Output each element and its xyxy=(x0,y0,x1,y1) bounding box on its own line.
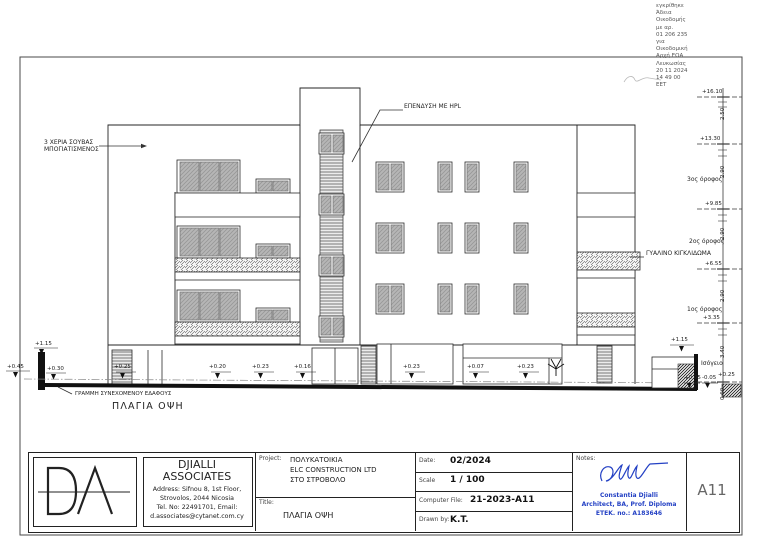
spot-bottom: +0.25 xyxy=(114,364,131,370)
annotation-hpl: ΕΠΕΝΔΥΣΗ ΜΕ HPL xyxy=(404,104,461,111)
annotation-glass-railing: ΓΥΑΛΙΝΟ ΚΙΓΚΛΙΔΩΜΑ xyxy=(646,251,711,258)
spot-right-a: +0.05 xyxy=(684,375,701,381)
stamp-line: Λευκωσίας xyxy=(656,61,688,68)
spot-right-c: +0.25 xyxy=(718,372,735,378)
stamp-line: Οικοδομής xyxy=(656,17,688,24)
notes-label: Notes: xyxy=(576,456,595,463)
firm-address-2: Strovolos, 2044 Nicosia xyxy=(143,495,251,502)
floor-label-1: 1ος όροφος xyxy=(687,307,722,314)
date-label: Date: xyxy=(419,458,435,465)
drawing-title-label: ΠΛΑΓΙΑ ΟΨΗ xyxy=(112,402,184,413)
logo-box xyxy=(33,457,137,527)
annotation-plaster-line2: ΜΠΟΓΙΑΤΙΣΜΕΝΟΣ xyxy=(44,147,99,154)
approval-stamp: εγκρίθηκε Άδεια Οικοδομής με αρ. 01 206 … xyxy=(656,3,688,89)
title-label: Title: xyxy=(259,500,274,507)
spot-bottom: +0.23 xyxy=(403,364,420,370)
floor-label-2: 2ος όροφος xyxy=(689,239,724,246)
drawing-sheet: εγκρίθηκε Άδεια Οικοδομής με αρ. 01 206 … xyxy=(0,0,768,543)
floor-label-3: 3ος όροφος xyxy=(687,177,722,184)
scale-label: Scale xyxy=(419,478,435,485)
spot-bottom: +0.23 xyxy=(517,364,534,370)
titleblock-divider xyxy=(255,497,415,498)
right-balconies xyxy=(577,193,640,335)
dim-storey: 3.40 xyxy=(720,346,726,358)
architect-credentials: Architect, BA, Prof. Diploma xyxy=(572,502,686,509)
stamp-line: EET xyxy=(656,82,688,89)
floor-label-ground: Ισόγειο xyxy=(701,361,723,368)
titleblock-divider xyxy=(572,452,573,531)
spot-bottom: +0.23 xyxy=(252,364,269,370)
architect-signature-icon xyxy=(596,458,676,490)
level-f2: +6.55 xyxy=(705,261,722,267)
drawn-by-label: Drawn by: xyxy=(419,517,449,524)
stamp-line: 14 49 00 xyxy=(656,75,688,82)
annotation-plaster: 3 ΧΕΡΙΑ ΣΟΥΒΑΣ ΜΠΟΓΙΑΤΙΣΜΕΝΟΣ xyxy=(44,140,99,154)
dim-storey: 0.60 xyxy=(720,388,726,400)
architect-etek-number: ETEK. no.: A183646 xyxy=(572,511,686,518)
firm-address-4: d.associates@cytanet.com.cy xyxy=(143,513,251,520)
level-roof: +16.10 xyxy=(702,89,722,95)
title-value: ΠΛΑΓΙΑ ΟΨΗ xyxy=(283,511,333,520)
level-f3: +9.85 xyxy=(705,201,722,207)
spot-bottom: +0.20 xyxy=(209,364,226,370)
titleblock-divider xyxy=(255,452,256,531)
dim-storey: 2.90 xyxy=(720,290,726,302)
sheet-number: A11 xyxy=(686,482,738,499)
annotation-ground-line: ΓΡΑΜΜΗ ΣΥΝΕΧΟΜΕΝΟΥ ΕΔΑΦΟΥΣ xyxy=(75,391,171,397)
stamp-line: 01 206 235 xyxy=(656,32,688,39)
spot-left-a: +0.45 xyxy=(7,364,24,370)
project-line-3: ΣΤΟ ΣΤΡΟΒΟΛΟ xyxy=(290,476,345,484)
left-wing xyxy=(175,160,300,344)
stamp-line: 20 11 2024 xyxy=(656,68,688,75)
spot-right-wall: +1.15 xyxy=(671,337,688,343)
file-value: 21-2023-A11 xyxy=(470,495,535,505)
firm-name-2: ASSOCIATES xyxy=(143,471,251,484)
architect-name: Constantia Djialli xyxy=(572,493,686,500)
spot-left-b: +0.30 xyxy=(47,366,64,372)
stamp-line: με αρ. xyxy=(656,25,688,32)
titleblock-divider xyxy=(415,491,572,492)
spot-bottom: +0.07 xyxy=(467,364,484,370)
dim-storey: 2.50 xyxy=(720,108,726,120)
level-f1: +3.35 xyxy=(703,315,720,321)
spot-left-wall: +1.15 xyxy=(35,341,52,347)
firm-logo-icon xyxy=(34,458,134,524)
firm-address-1: Address: Sifnou 8, 1st Floor, xyxy=(143,486,251,493)
titleblock-divider xyxy=(415,511,572,512)
spot-bottom: +0.16 xyxy=(294,364,311,370)
file-label: Computer File: xyxy=(419,498,463,505)
spot-right-b: -0.05 xyxy=(702,375,716,381)
project-line-1: ΠΟΛΥΚΑΤΟΙΚΙΑ xyxy=(290,456,343,464)
date-value: 02/2024 xyxy=(450,456,491,466)
stair-tower xyxy=(319,130,344,342)
drawn-by-value: K.T. xyxy=(450,515,469,525)
dim-storey: 2.90 xyxy=(720,228,726,240)
titleblock-divider xyxy=(415,472,572,473)
level-f3top: +13.30 xyxy=(700,136,720,142)
scale-value: 1 / 100 xyxy=(450,475,485,485)
firm-address-3: Tel. No: 22491701, Email: xyxy=(143,504,251,511)
project-label: Project: xyxy=(259,456,282,463)
stamp-line: Αρχή ΕΟΑ xyxy=(656,53,688,60)
project-line-2: ELC CONSTRUCTION LTD xyxy=(290,466,377,474)
dim-storey: 2.90 xyxy=(720,166,726,178)
